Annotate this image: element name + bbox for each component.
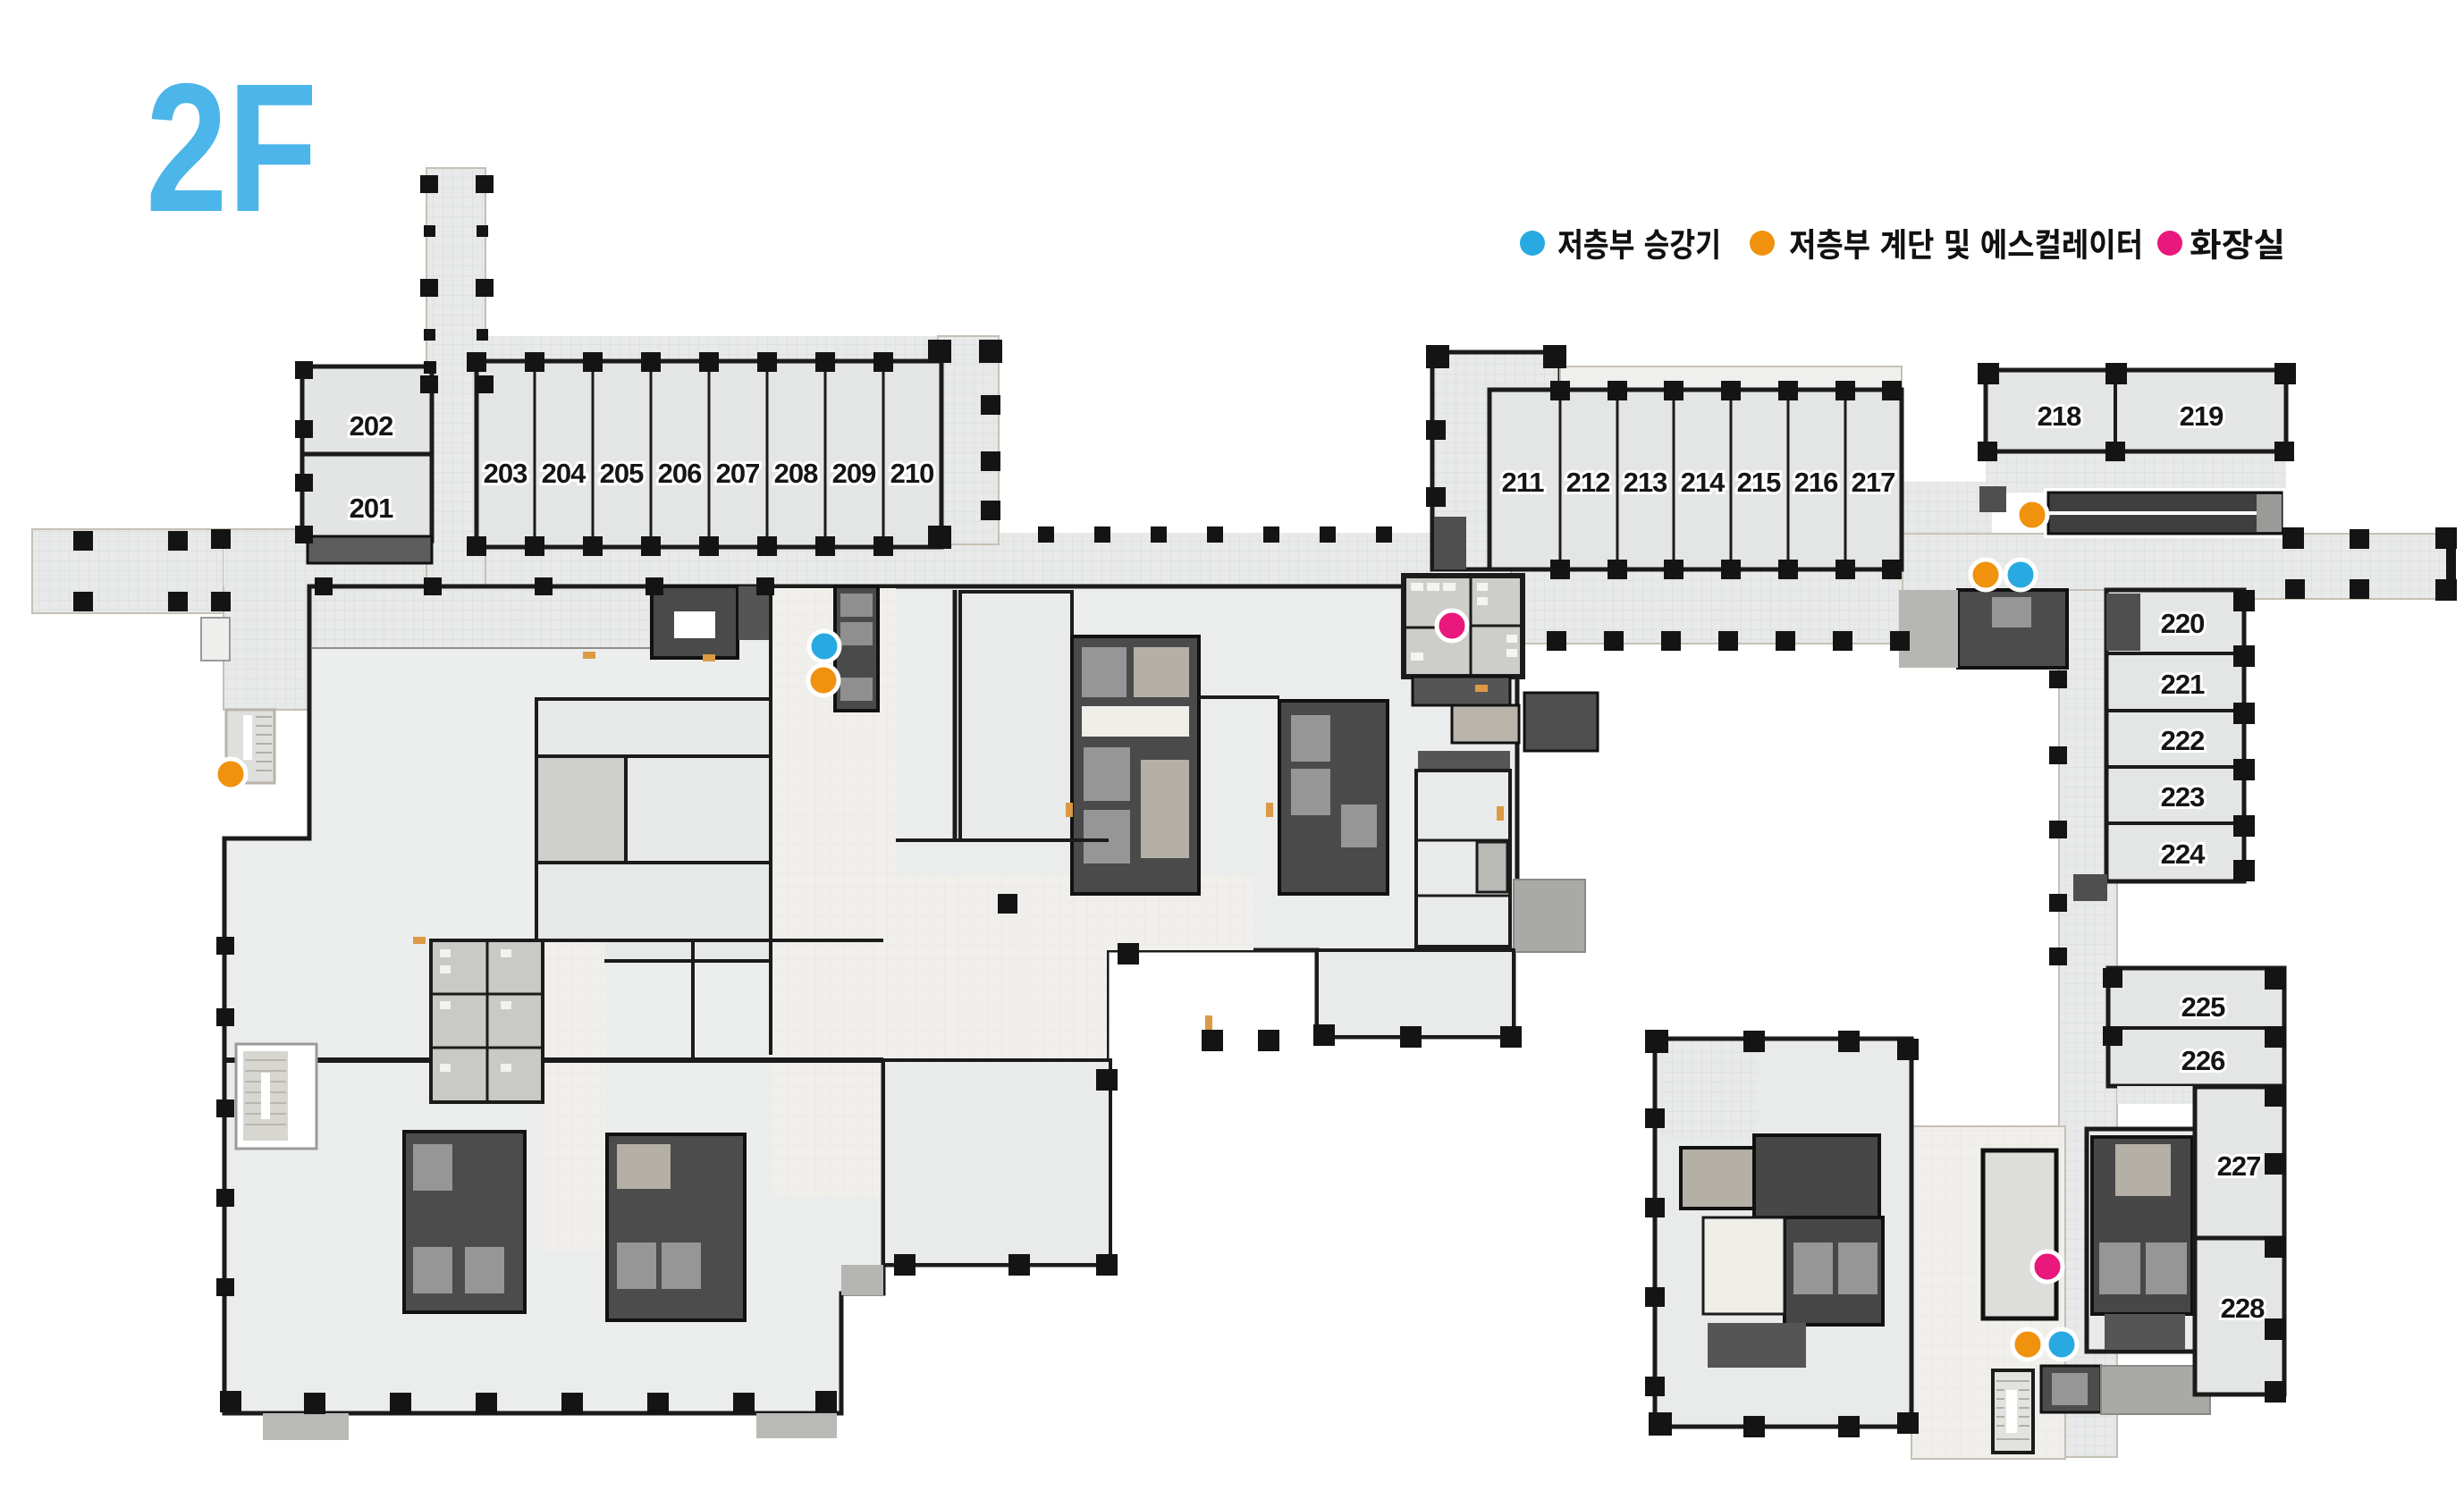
svg-text:218: 218 (2038, 400, 2081, 432)
svg-text:210: 210 (890, 458, 934, 489)
svg-text:220: 220 (2161, 608, 2205, 639)
svg-text:223: 223 (2161, 781, 2205, 813)
svg-text:226: 226 (2181, 1045, 2225, 1076)
svg-text:212: 212 (1566, 467, 1610, 498)
svg-text:228: 228 (2221, 1293, 2265, 1324)
svg-text:202: 202 (350, 410, 393, 442)
svg-text:2F: 2F (146, 46, 317, 250)
svg-text:206: 206 (658, 458, 702, 489)
svg-text:205: 205 (600, 458, 644, 489)
svg-text:227: 227 (2217, 1150, 2261, 1182)
svg-text:204: 204 (542, 458, 586, 489)
svg-text:211: 211 (1501, 467, 1544, 498)
svg-text:221: 221 (2161, 669, 2205, 700)
svg-text:207: 207 (716, 458, 760, 489)
svg-text:216: 216 (1794, 467, 1838, 498)
svg-text:222: 222 (2161, 725, 2205, 756)
svg-text:217: 217 (1852, 467, 1895, 498)
svg-text:215: 215 (1737, 467, 1781, 498)
svg-text:209: 209 (832, 458, 876, 489)
svg-text:224: 224 (2161, 838, 2206, 870)
svg-text:225: 225 (2181, 991, 2225, 1023)
svg-text:219: 219 (2180, 400, 2224, 432)
svg-text:201: 201 (350, 493, 393, 524)
svg-text:214: 214 (1681, 467, 1726, 498)
svg-text:203: 203 (484, 458, 527, 489)
svg-text:208: 208 (774, 458, 818, 489)
svg-text:213: 213 (1624, 467, 1667, 498)
